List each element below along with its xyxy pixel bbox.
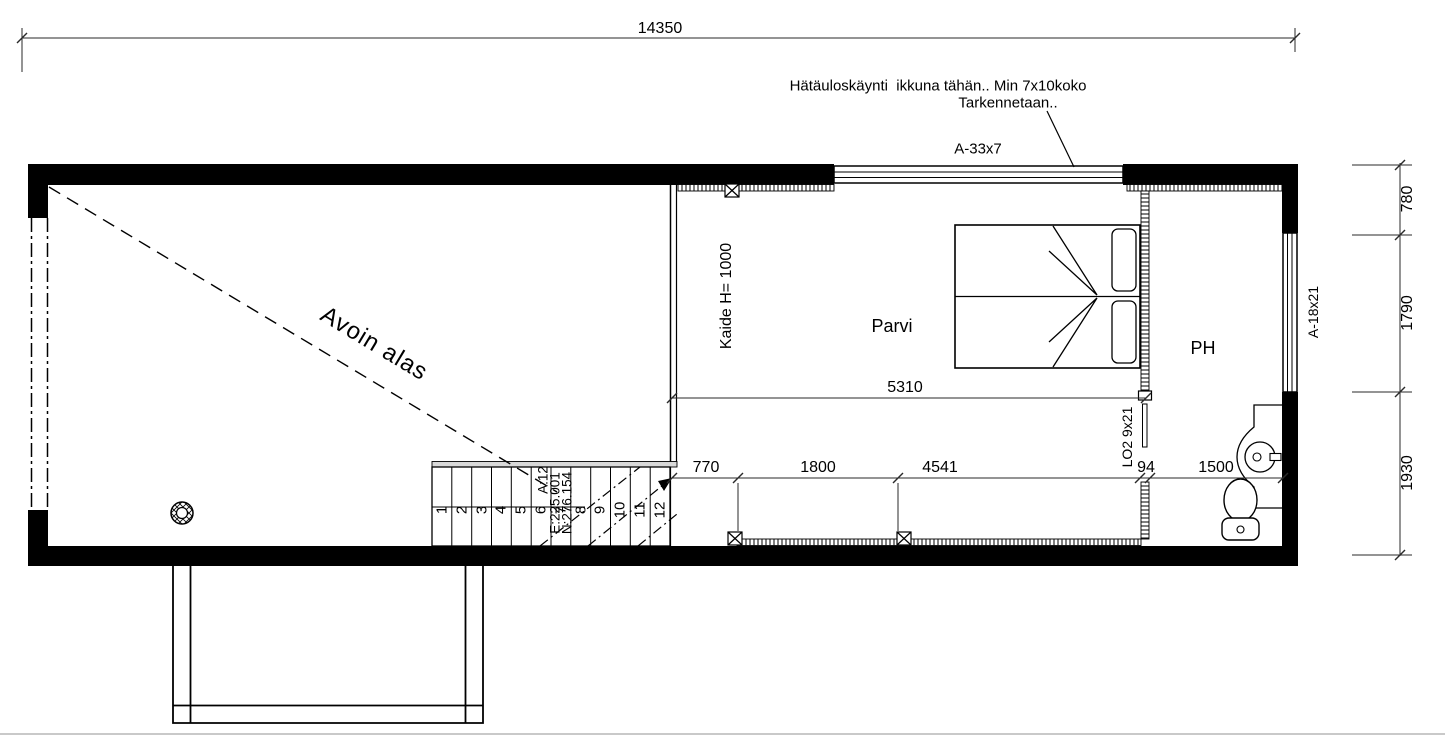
stair-railing	[432, 462, 677, 468]
floor-plan-page: 14350 Hätäuloskäynti ikkuna tähän.. Min …	[0, 0, 1445, 737]
partition-wall-upper	[1141, 191, 1149, 399]
post-marker	[728, 532, 742, 545]
dim-label-1790: 1790	[1400, 295, 1416, 331]
dim-label-770: 770	[693, 460, 720, 476]
left-wall-opening	[28, 218, 48, 510]
open-below-line	[49, 187, 557, 492]
parvi-floor-edge	[671, 185, 677, 546]
stair-number-2: 2	[455, 506, 470, 514]
stair-number-1: 1	[435, 506, 450, 514]
room-label-ph: PH	[1190, 339, 1215, 357]
stair-number-12: 12	[653, 502, 668, 519]
railing-label: Kaide H= 1000	[719, 243, 735, 349]
sink-drain	[1253, 453, 1261, 461]
stair-number-3: 3	[475, 506, 490, 514]
room-label-parvi: Parvi	[871, 317, 912, 335]
stair-info-rise: N:276.154	[560, 472, 574, 534]
dim-label-780: 780	[1400, 186, 1416, 213]
dim-total-width-label: 14350	[638, 21, 683, 37]
right-window	[1283, 233, 1297, 392]
toilet-bowl	[1224, 479, 1257, 521]
floor-plan-drawing	[0, 0, 1445, 737]
pillow	[1112, 229, 1136, 291]
sink-faucet	[1270, 454, 1281, 461]
stair-number-6: 6	[534, 506, 549, 514]
emergency-exit-annotation-line1: Hätäuloskäynti ikkuna tähän.. Min 7x10ko…	[790, 79, 1087, 94]
emergency-exit-annotation-line2: Tarkennetaan..	[958, 96, 1057, 111]
door-leaf	[1143, 404, 1148, 447]
stair-number-5: 5	[514, 506, 529, 514]
door-label: LO2 9x21	[1120, 407, 1134, 468]
right-window-label: A-18x21	[1306, 286, 1320, 338]
post-marker	[897, 532, 911, 545]
post-markers	[725, 184, 911, 545]
dim-label-4541: 4541	[922, 460, 958, 476]
partition-wall-lower	[1141, 482, 1149, 539]
top-window	[834, 166, 1123, 183]
annotation-leader-line	[1047, 111, 1074, 167]
post-marker	[725, 184, 739, 197]
toilet-button	[1237, 526, 1244, 533]
dim-parvi-width-label: 5310	[887, 380, 923, 396]
pillow	[1112, 301, 1136, 363]
bed	[955, 225, 1140, 368]
stair-number-11: 11	[633, 502, 648, 518]
stair-number-8: 8	[574, 506, 589, 514]
dim-ticks	[17, 33, 1405, 560]
toilet	[1222, 479, 1259, 540]
top-window-label: A-33x7	[954, 142, 1002, 157]
dim-label-1500: 1500	[1198, 460, 1234, 476]
stair-number-9: 9	[593, 506, 608, 514]
stair-number-4: 4	[494, 506, 509, 514]
dim-label-94: 94	[1137, 460, 1155, 476]
terrace-outline	[173, 566, 483, 723]
dimension-lines	[17, 28, 1412, 560]
stair-number-10: 10	[613, 502, 628, 519]
dim-label-1930: 1930	[1400, 455, 1416, 491]
column	[171, 502, 193, 524]
dim-label-1800: 1800	[800, 460, 836, 476]
